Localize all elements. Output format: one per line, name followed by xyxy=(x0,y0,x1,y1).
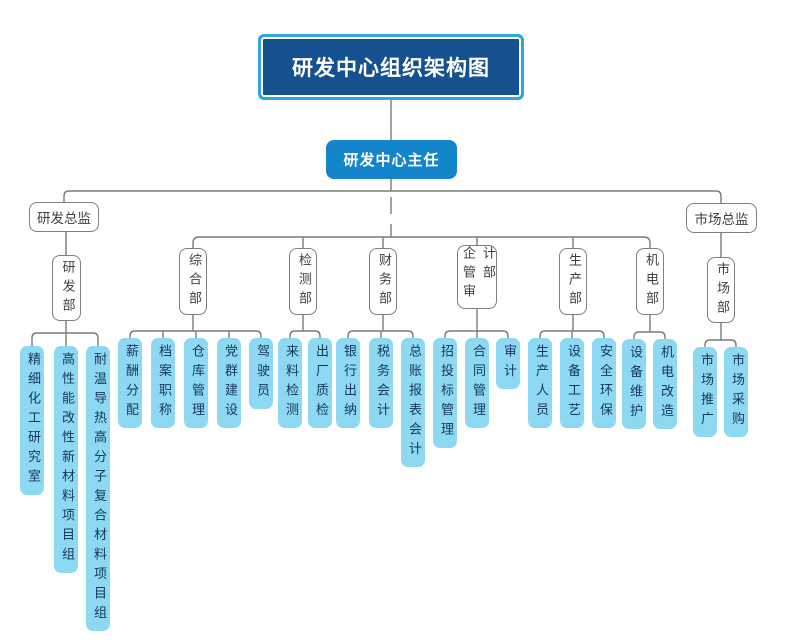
director-label: 研发中心主任 xyxy=(343,149,439,170)
leaf-label: 安全环保 xyxy=(594,344,614,422)
leaf-label: 银行出纳 xyxy=(338,344,358,422)
leaf-node[interactable]: 党群建设 xyxy=(217,338,241,428)
dept-audit-node[interactable]: 企管审计部 xyxy=(457,245,497,309)
leaf-label: 驾驶员 xyxy=(251,344,271,403)
supervisor-rd-node[interactable]: 研发总监 xyxy=(29,202,99,232)
leaf-label: 税务会计 xyxy=(371,344,391,422)
dept-audit-label: 企管审计部 xyxy=(457,246,497,308)
leaf-node[interactable]: 总账报表会计 xyxy=(401,338,425,467)
leaf-node[interactable]: 精细化工研究室 xyxy=(20,346,44,495)
leaf-label: 总账报表会计 xyxy=(403,344,423,461)
dept-production-label: 生产部 xyxy=(563,253,583,310)
leaf-label: 党群建设 xyxy=(219,344,239,422)
leaf-label: 高性能改性新材料项目组 xyxy=(56,352,76,567)
leaf-node[interactable]: 市场推广 xyxy=(693,347,717,437)
leaf-node[interactable]: 审计 xyxy=(496,338,520,389)
leaf-label: 招投标管理 xyxy=(435,344,455,442)
dept-market-label: 市场部 xyxy=(711,262,731,319)
leaf-node[interactable]: 来料检测 xyxy=(278,338,302,428)
leaf-label: 合同管理 xyxy=(467,344,487,422)
leaf-label: 薪酬分配 xyxy=(120,344,140,422)
supervisor-market-label: 市场总监 xyxy=(695,208,749,228)
leaf-node[interactable]: 生产人员 xyxy=(528,338,552,428)
dept-electromech-node[interactable]: 机电部 xyxy=(636,248,664,315)
leaf-node[interactable]: 高性能改性新材料项目组 xyxy=(54,346,78,573)
chart-title-label: 研发中心组织架构图 xyxy=(292,52,490,82)
leaf-label: 耐温导热高分子复合材料项目组 xyxy=(88,352,108,625)
leaf-node[interactable]: 银行出纳 xyxy=(336,338,360,428)
leaf-node[interactable]: 设备工艺 xyxy=(560,338,584,428)
leaf-label: 来料检测 xyxy=(280,344,300,422)
chart-title-node[interactable]: 研发中心组织架构图 xyxy=(258,34,524,100)
leaf-label: 机电改造 xyxy=(655,345,675,423)
leaf-node[interactable]: 驾驶员 xyxy=(249,338,273,409)
dept-inspection-node[interactable]: 检测部 xyxy=(289,248,317,315)
dept-inspection-label: 检测部 xyxy=(293,253,313,310)
leaf-label: 仓库管理 xyxy=(186,344,206,422)
director-node[interactable]: 研发中心主任 xyxy=(326,140,457,179)
leaf-label: 设备工艺 xyxy=(562,344,582,422)
leaf-node[interactable]: 耐温导热高分子复合材料项目组 xyxy=(86,346,110,631)
org-chart-canvas: 研发中心组织架构图 研发中心主任 研发总监 市场总监 研发部 综合部 检测部 财… xyxy=(0,0,795,641)
dept-rd-node[interactable]: 研发部 xyxy=(52,255,81,321)
dept-electromech-label: 机电部 xyxy=(640,253,660,310)
dept-finance-label: 财务部 xyxy=(373,253,393,310)
dept-rd-label: 研发部 xyxy=(57,260,77,317)
leaf-node[interactable]: 市场采购 xyxy=(724,347,748,437)
dept-market-node[interactable]: 市场部 xyxy=(707,257,735,323)
leaf-node[interactable]: 设备维护 xyxy=(622,339,646,429)
leaf-node[interactable]: 仓库管理 xyxy=(184,338,208,428)
dept-production-node[interactable]: 生产部 xyxy=(559,248,587,315)
leaf-label: 档案职称 xyxy=(153,344,173,422)
leaf-label: 设备维护 xyxy=(624,345,644,423)
leaf-label: 生产人员 xyxy=(530,344,550,422)
leaf-label: 市场采购 xyxy=(726,353,746,431)
leaf-node[interactable]: 税务会计 xyxy=(369,338,393,428)
leaf-node[interactable]: 出厂质检 xyxy=(308,338,332,428)
leaf-node[interactable]: 机电改造 xyxy=(653,339,677,429)
leaf-node[interactable]: 档案职称 xyxy=(151,338,175,428)
leaf-label: 精细化工研究室 xyxy=(22,352,42,489)
dept-general-label: 综合部 xyxy=(183,253,203,310)
supervisor-rd-label: 研发总监 xyxy=(37,207,91,227)
leaf-label: 市场推广 xyxy=(695,353,715,431)
leaf-label: 出厂质检 xyxy=(310,344,330,422)
dept-finance-node[interactable]: 财务部 xyxy=(369,248,397,315)
supervisor-market-node[interactable]: 市场总监 xyxy=(686,203,757,233)
leaf-label: 审计 xyxy=(498,344,518,383)
leaf-node[interactable]: 安全环保 xyxy=(592,338,616,428)
leaf-node[interactable]: 合同管理 xyxy=(465,338,489,428)
leaf-node[interactable]: 薪酬分配 xyxy=(118,338,142,428)
dept-general-node[interactable]: 综合部 xyxy=(179,248,207,315)
leaf-node[interactable]: 招投标管理 xyxy=(433,338,457,448)
